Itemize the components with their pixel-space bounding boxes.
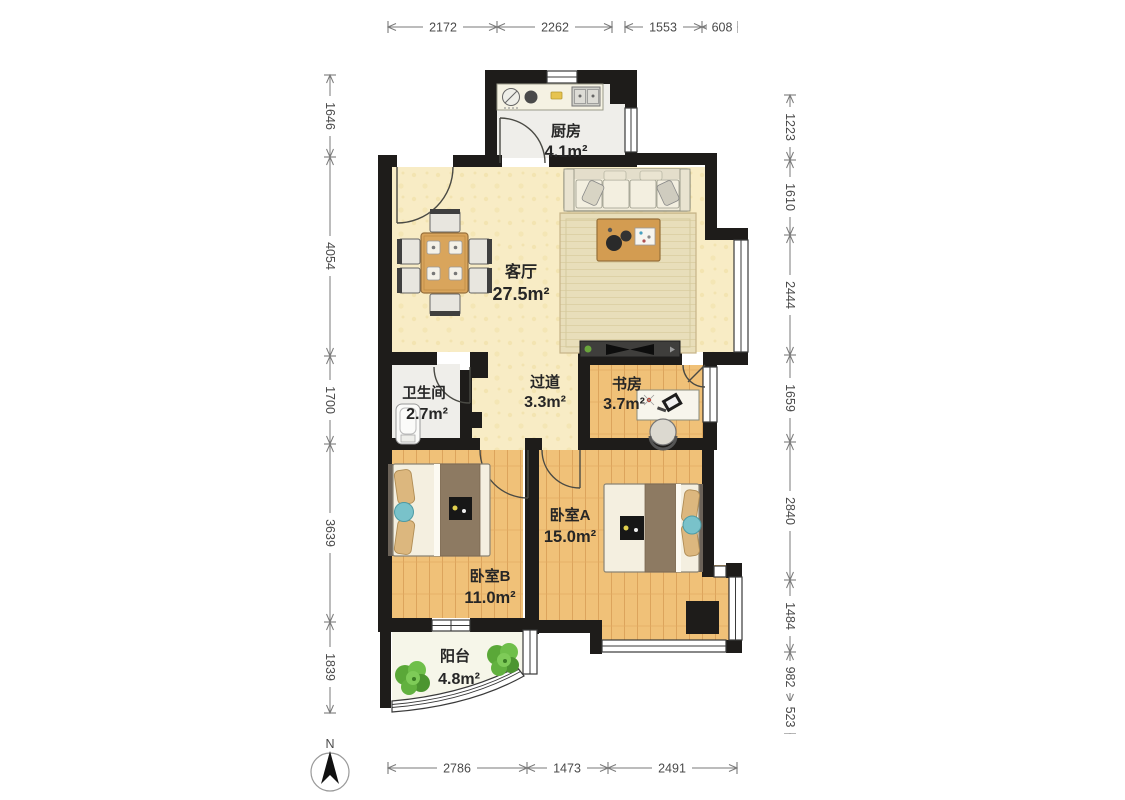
tray-icon [635,228,655,245]
living-label: 客厅 [505,262,537,281]
living-area: 27.5m² [492,284,549,304]
balcony-left-wall [380,632,391,708]
dim-bottom-1: 1473 [553,762,581,776]
dim-right-1: 1610 [783,183,797,211]
dims-right: 1223 1610 2444 1659 2840 1484 982 523 [783,95,797,733]
teapot-icon [606,235,622,251]
living-room-window [734,240,748,352]
dim-right-6: 982 [783,667,797,688]
bedrooms-top-wall-left [378,438,480,450]
step-wall-horizontal-2 [705,228,748,240]
floor-plan-page: 厨房 4.1m² 客厅 27.5m² 过道 3.3m² 书房 3.7m² 卫生间… [0,0,1125,800]
bathroom-area: 2.7m² [406,406,448,423]
dim-top-3: 608 [712,21,733,35]
dim-bottom-2: 2491 [658,762,686,776]
bay-left-wall [590,620,602,654]
sofa [564,169,690,211]
bedroom-b-label: 卧室B [470,567,511,585]
study-desk [637,390,699,420]
bathroom-label: 卫生间 [402,384,446,402]
bay-window-top [714,566,726,577]
kitchen-top-wall-right [577,70,615,84]
bay-corner-top [726,563,742,578]
kitchen-right-window [625,108,637,152]
floor-plan-canvas: 厨房 4.1m² 客厅 27.5m² 过道 3.3m² 书房 3.7m² 卫生间… [0,0,1125,800]
kitchen-counter [497,84,603,110]
kitchen-top-window [547,71,577,83]
dim-left-0: 1646 [323,102,337,130]
stove-pot-icon [525,91,538,104]
bedroom-a-label: 卧室A [550,506,591,524]
balcony-right-window [523,630,537,674]
dim-left-4: 1839 [323,653,337,681]
round-pillow [395,503,414,522]
bay-column [686,601,719,634]
bed-decor [449,497,472,520]
bay-window-bottom [602,640,726,652]
dim-right-3: 1659 [783,384,797,412]
balcony-label: 阳台 [440,647,470,665]
dim-right-5: 1484 [783,602,797,630]
north-arrow-icon [321,751,339,784]
dim-left-1: 4054 [323,242,337,270]
bed-runner [645,484,676,572]
kitchen-label: 厨房 [551,122,581,140]
bathroom-wall-nub [470,412,482,428]
bedroom-b-bed [388,464,490,556]
kitchen-top-wall-left [485,70,547,84]
bedroom-a-right-wall [702,450,714,577]
living-bottom-wall-left [378,352,437,365]
dim-left-2: 1700 [323,386,337,414]
study-window [703,367,717,422]
dim-top-0: 2172 [429,21,457,35]
bathroom-door-post [470,352,488,378]
kitchen-area: 4.1m² [544,143,588,161]
study-chair [650,419,676,449]
dim-right-0: 1223 [783,113,797,141]
bedroom-b-bottom-wall-left [378,618,432,632]
entry-wall-left [378,155,397,167]
compass: N [311,737,349,791]
study-label: 书房 [612,375,642,393]
dim-bottom-0: 2786 [443,762,471,776]
left-outer-wall [378,155,392,632]
bedroom-a-area: 15.0m² [544,528,597,546]
study-left-wall [578,365,590,450]
bedrooms-top-wall-right [580,438,717,450]
dims-left: 1646 4054 1700 3639 1839 [323,75,337,713]
hallway-label: 过道 [530,373,560,391]
bedroom-a-bed [604,484,703,572]
dim-left-3: 3639 [323,519,337,547]
bedroom-divider-wall [525,438,539,634]
balcony-sliding-door [432,620,470,631]
dims-top: 2172 2262 1553 608 [388,20,737,35]
hallway-area: 3.3m² [524,394,566,411]
kitchen-corner-block [610,70,637,104]
step-wall-horizontal [630,153,717,165]
dim-right-4: 2840 [783,497,797,525]
tv-plant-icon [585,346,592,353]
dim-top-1: 2262 [541,21,569,35]
dim-right-7: 523 [783,707,797,728]
bay-window-right [729,577,742,640]
balcony-area: 4.8m² [438,671,480,688]
round-pillow [683,516,701,534]
study-area: 3.7m² [603,396,645,413]
dim-right-2: 2444 [783,281,797,309]
dim-top-2: 1553 [649,21,677,35]
balcony-plant-right [487,643,519,676]
coffee-table [597,219,660,261]
kitchen-sink-icon [572,87,600,106]
compass-label: N [325,737,334,751]
dims-bottom: 2786 1473 2491 [388,761,737,776]
kitchen-left-wall [485,75,497,167]
tv-stand [580,341,680,357]
bedroom-b-area: 11.0m² [464,589,516,607]
bay-corner-bottom [726,640,742,653]
